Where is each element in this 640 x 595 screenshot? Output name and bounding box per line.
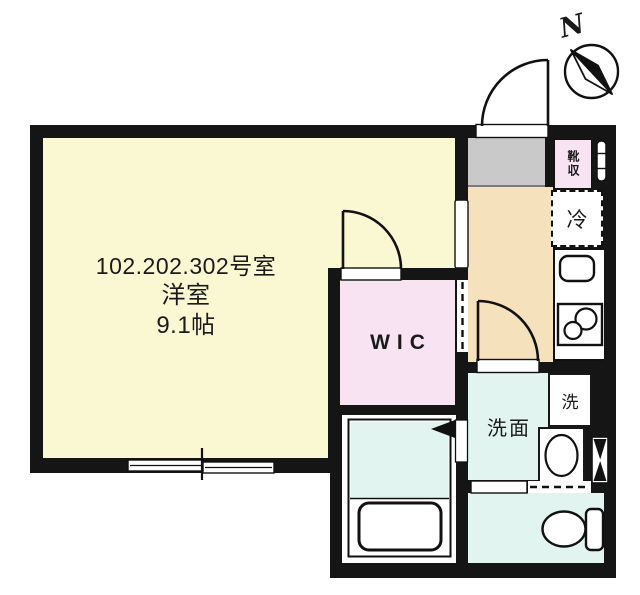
floor-plan: 102.202.302号室 洋室 9.1帖 WIC 靴収 冷 洗面 洗 N xyxy=(0,0,640,595)
washroom-label: 洗面 xyxy=(468,373,548,480)
compass-icon xyxy=(565,45,618,98)
wic-label: WIC xyxy=(340,280,455,405)
kitchen-counter xyxy=(553,248,604,361)
room-type-label: 洋室 xyxy=(40,281,332,311)
compass-north-label: N xyxy=(545,1,600,52)
toilet-room-area xyxy=(468,493,604,563)
unit-number-label: 102.202.302号室 xyxy=(40,251,332,281)
main-room-title: 102.202.302号室 洋室 9.1帖 xyxy=(40,251,332,341)
entry-door-swing xyxy=(482,60,548,126)
kitchen-area xyxy=(468,187,553,362)
refrigerator-label: 冷 xyxy=(551,190,603,247)
shoe-storage-label: 靴収 xyxy=(554,139,592,189)
entry-genkan-area xyxy=(468,138,545,187)
room-size-label: 9.1帖 xyxy=(40,311,332,341)
laundry-label: 洗 xyxy=(548,373,592,427)
